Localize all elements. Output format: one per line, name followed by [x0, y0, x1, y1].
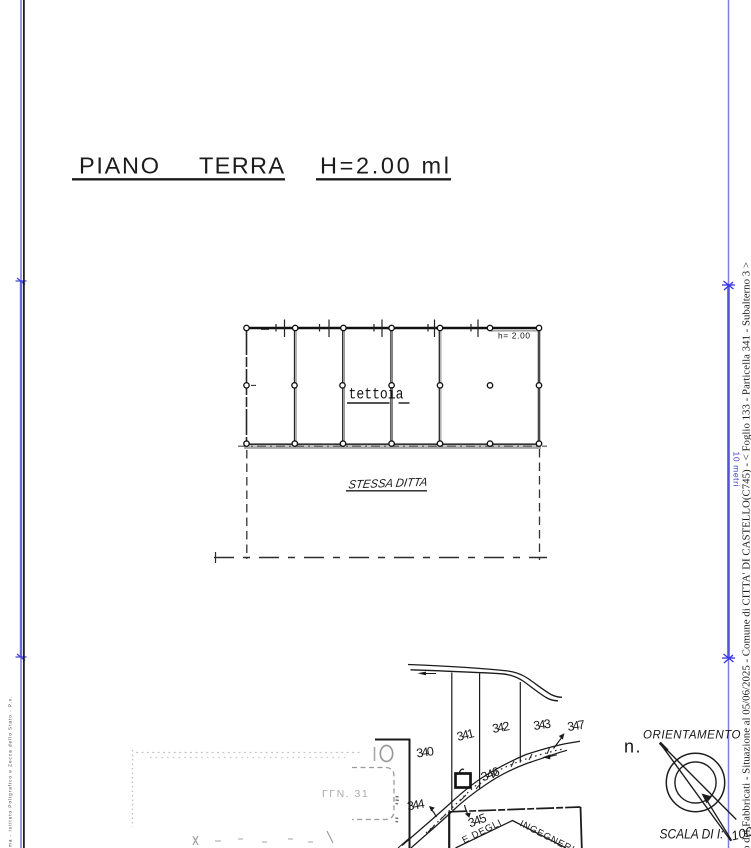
svg-text:346: 346: [479, 764, 502, 784]
svg-text:344: 344: [406, 797, 426, 814]
svg-text:ΓΓΝ. 31: ΓΓΝ. 31: [322, 788, 369, 800]
svg-text:H=2.00 ml: H=2.00 ml: [320, 153, 449, 179]
svg-text:PIANO: PIANO: [79, 153, 159, 179]
svg-text:ma - Istituto Poligrafico e Ze: ma - Istituto Poligrafico e Zecca dello …: [8, 697, 13, 847]
svg-text:347: 347: [566, 718, 585, 734]
svg-text:tettoia: tettoia: [349, 386, 404, 404]
svg-text:INGEGNERI: INGEGNERI: [518, 818, 577, 848]
svg-text:10 metri: 10 metri: [732, 452, 742, 487]
svg-text:342: 342: [491, 719, 511, 736]
svg-text:ORIENTAMENTO: ORIENTAMENTO: [643, 729, 741, 741]
svg-text:TERRA: TERRA: [199, 153, 284, 179]
svg-text:SCALA DI I:: SCALA DI I:: [660, 827, 724, 842]
svg-text:o dei Fabbricati - Situazione: o dei Fabbricati - Situazione al 05/06/2…: [742, 262, 751, 848]
svg-text:STESSA DITTA: STESSA DITTA: [348, 475, 429, 492]
svg-text:h= 2.00: h= 2.00: [498, 331, 530, 341]
svg-text:343: 343: [532, 717, 551, 733]
svg-text:n.: n.: [624, 737, 642, 757]
svg-text:340: 340: [415, 744, 434, 760]
svg-text:341: 341: [455, 726, 475, 744]
